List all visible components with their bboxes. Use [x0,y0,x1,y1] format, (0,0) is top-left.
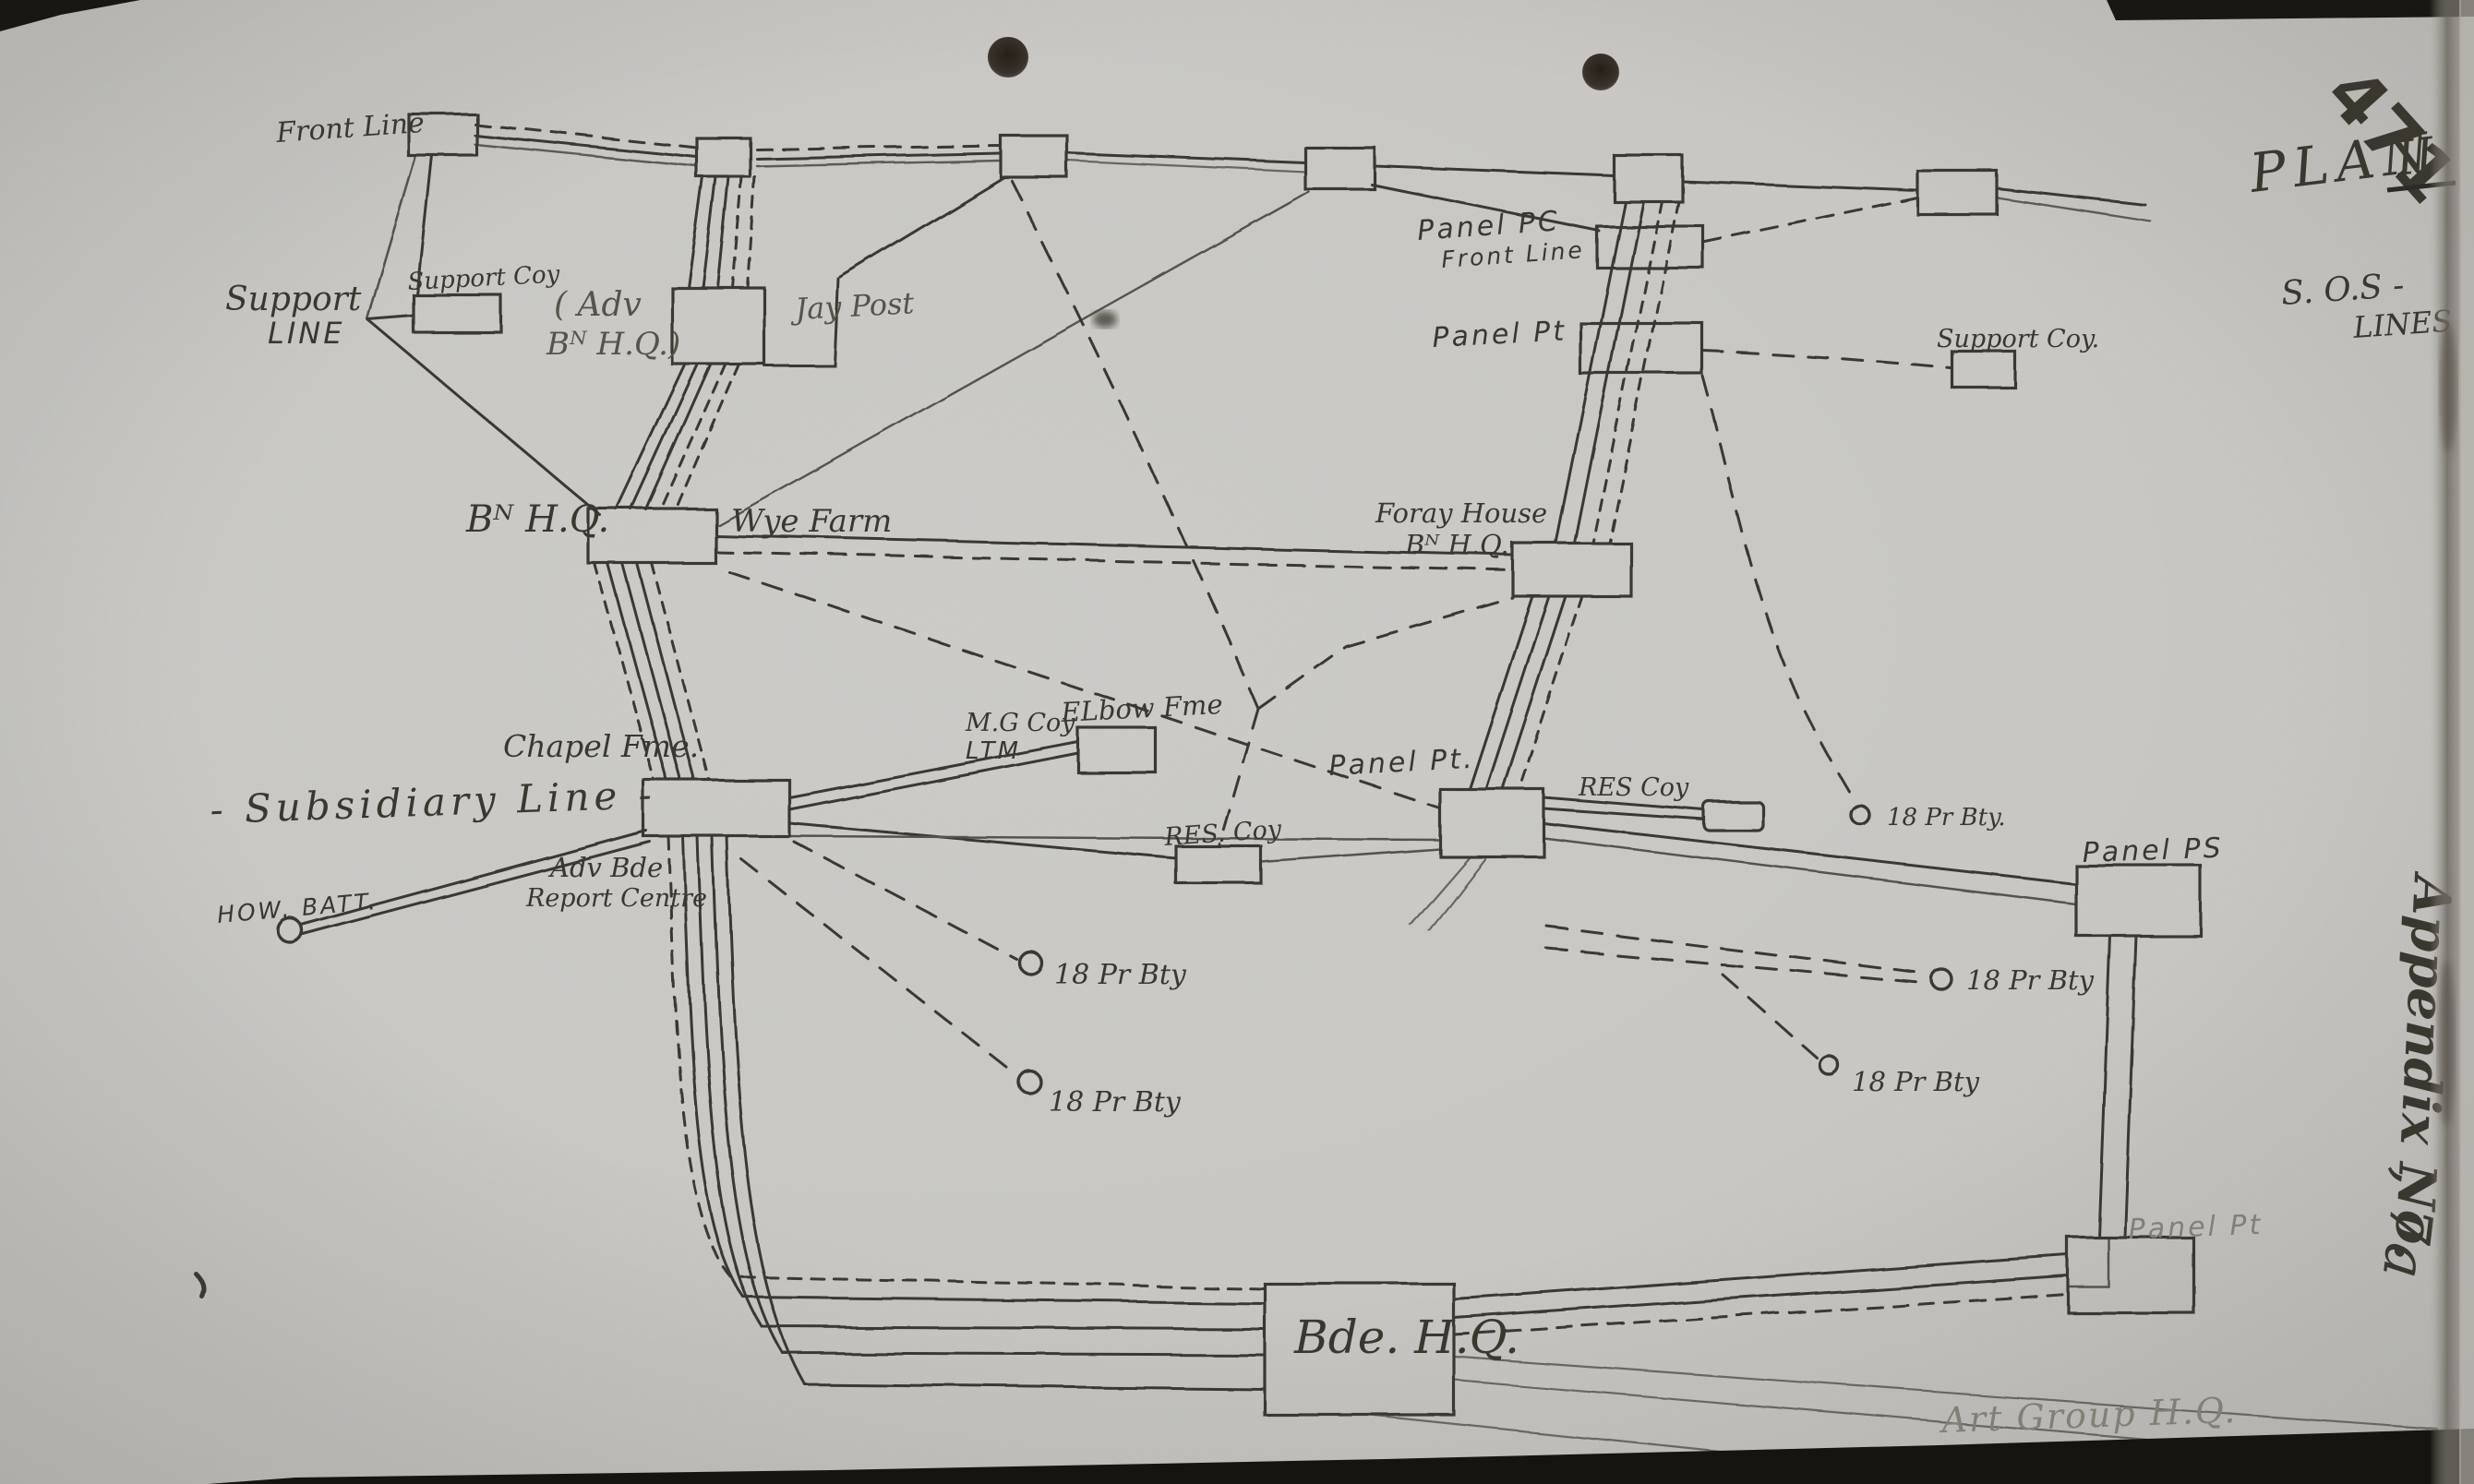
label-foray-house-1: Foray House [1375,497,1547,529]
label-panel-pt-bottom: Panel Pt [2128,1209,2264,1246]
label-mg-coy-2: LTM [966,737,1021,765]
label-support-line-2: LINE [268,316,344,351]
label-chapel-fme: Chapel Fme. [503,728,699,764]
label-bty-right-lower: 18 Pr Bty [1852,1066,1980,1097]
label-support-coy-right: Support Coy. [1937,325,2099,353]
label-mg-coy-1: M.G Coy [965,709,1075,737]
label-support-line-1: Support [225,281,362,318]
label-bty-right-upper: 18 Pr Bty [1966,964,2095,996]
label-wye-farm: Wye Farm [731,503,892,540]
label-jay-post: Jay Post [788,285,915,327]
label-bn-hq: Bᴺ H.Q. [465,498,609,541]
crease-streak-1 [2440,323,2456,452]
label-adv-bn-hq-1: ( Adv [554,286,642,324]
scanned-signal-plan-photo: Front Line Support LINE Support Coy ( Ad… [0,0,2474,1484]
label-bty-res: 18 Pr Bty. [1887,804,2006,832]
label-res-coy-right: RES Coy [1578,773,1689,802]
right-crease-shadow [2430,0,2461,1484]
label-panel-ps: Panel PS [2082,832,2224,869]
label-bty-left-upper: 18 Pr Bty [1054,959,1187,991]
label-adv-bde-2: Report Centre [525,884,707,913]
right-edge-strip [2459,0,2474,1484]
label-bty-left-lower: 18 Pr Bty [1049,1086,1182,1119]
punch-hole-left [988,37,1028,78]
label-bde-hq: Bde. H.Q. [1293,1310,1519,1364]
label-foray-house-2: Bᴺ H.Q. [1404,529,1509,560]
label-adv-bn-hq-2: Bᴺ H.Q.) [546,326,680,363]
ink-smudge [1093,311,1117,328]
label-adv-bde-1: Adv Bde [547,852,663,883]
crease-streak-2 [2438,960,2455,1126]
punch-hole-right [1582,54,1619,90]
